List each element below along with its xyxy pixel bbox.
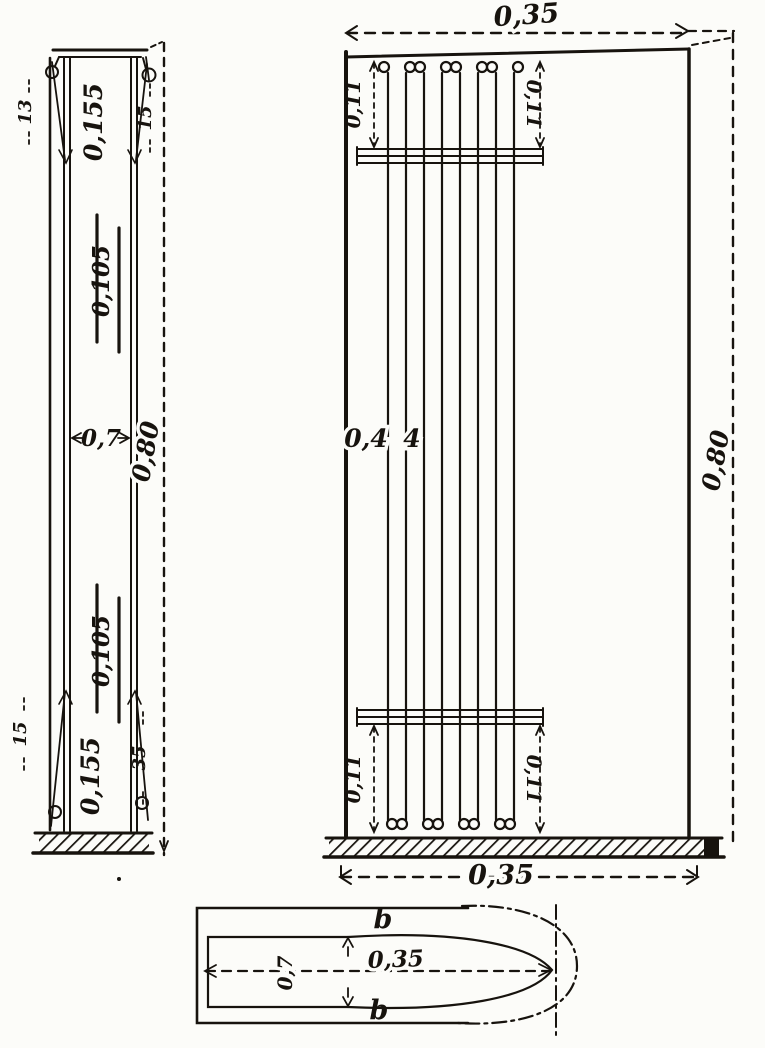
period-mark — [117, 877, 121, 881]
side-tick-bottom-right: 35 — [129, 745, 150, 770]
side-bottom-block-dimension: 0,155 — [76, 737, 105, 815]
string — [487, 62, 505, 829]
front-view-strings — [379, 62, 523, 829]
upper-bridge — [357, 147, 543, 165]
plan-edge-label-top: b — [374, 904, 393, 935]
engraving-page: 0,155 0,105 0,7 0,105 0,155 0,80 13 15 1… — [0, 0, 765, 1048]
plan-edge-label-bottom: b — [370, 995, 389, 1026]
instrument-drawing: 0,155 0,105 0,7 0,105 0,155 0,80 13 15 1… — [0, 0, 765, 1048]
front-view-base — [324, 838, 724, 857]
plan-length-label: 0,35 — [367, 945, 424, 974]
string — [469, 62, 487, 829]
string — [433, 62, 451, 829]
string — [505, 62, 523, 829]
plan-view-figure: 0,35 0,7 b b — [197, 904, 577, 1036]
side-lower-dimension: 0,105 — [88, 615, 115, 687]
front-height-label: 0,80 — [696, 427, 735, 493]
offset-top-right-label: 0,11 — [522, 80, 546, 129]
front-top-width-label: 0,35 — [493, 0, 561, 33]
side-tick-bottom-left: 15 — [10, 721, 31, 746]
plan-width-label: 0,7 — [273, 956, 297, 991]
side-top-block-dimension: 0,155 — [79, 83, 108, 161]
offset-top-left-label: 0,11 — [341, 80, 365, 129]
front-view-figure: 0,35 0,11 0,11 0,11 0,11 0,4 4 0,80 0,35 — [324, 0, 735, 891]
string-length-label-b: 4 — [403, 424, 420, 453]
string-length-label-a: 0,4 — [344, 424, 388, 453]
offset-bottom-left-label: 0,11 — [341, 755, 365, 804]
side-upper-dimension: 0,105 — [88, 245, 115, 317]
side-tick-top-left: 13 — [15, 99, 36, 124]
lower-bridge — [357, 708, 543, 726]
string — [451, 62, 469, 829]
side-view-figure: 0,155 0,105 0,7 0,105 0,155 0,80 13 15 1… — [10, 42, 168, 881]
side-width-dimension: 0,7 — [81, 425, 121, 452]
front-bottom-width-label: 0,35 — [468, 860, 534, 891]
side-view-base — [33, 833, 153, 853]
side-tick-top-right: 15 — [135, 105, 156, 130]
offset-bottom-right-label: 0,11 — [522, 755, 546, 804]
